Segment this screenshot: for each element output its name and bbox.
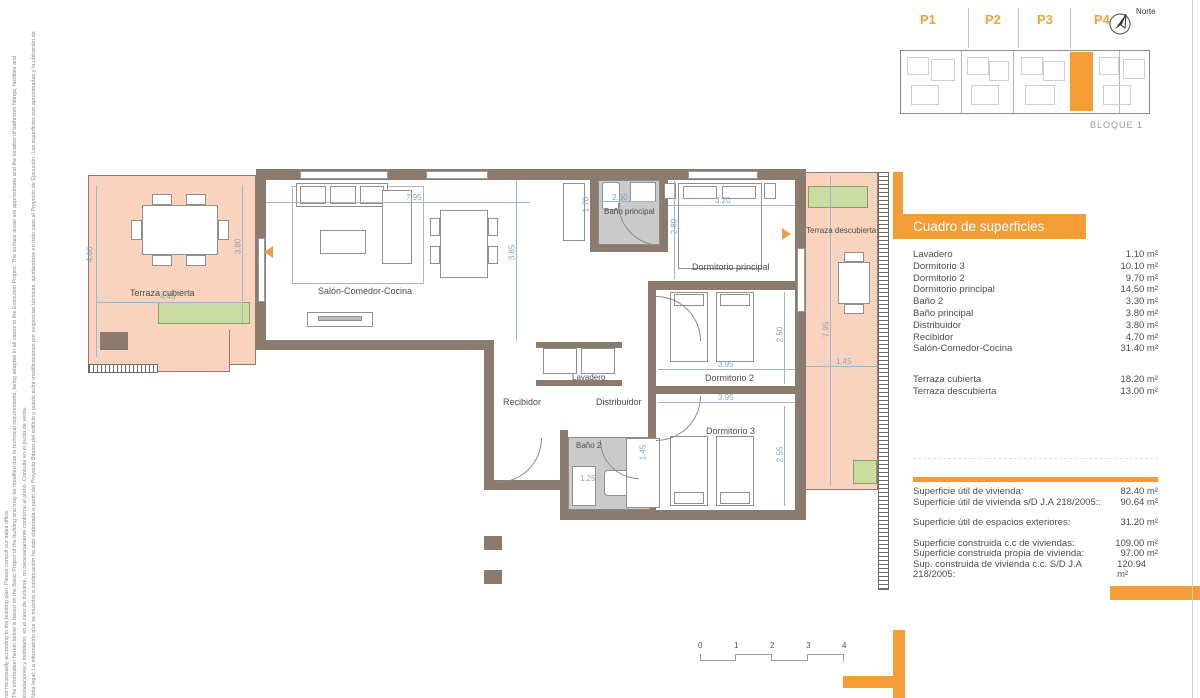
door-arc — [497, 438, 542, 483]
table-row: Distribuidor3.80 m² — [913, 320, 1158, 332]
total-row: Superficie útil de espacios exteriores:3… — [913, 518, 1158, 529]
dim-terraza-cubierta-height: 4.60 — [85, 247, 94, 263]
chair — [152, 194, 172, 205]
row-value: 3.80 m² — [1126, 320, 1158, 332]
keyplan-unit-p3: P3 — [1037, 12, 1053, 27]
terrace-table — [142, 205, 218, 255]
chair — [218, 220, 229, 240]
north-compass-icon — [1106, 8, 1136, 38]
keyplan-unit-outline — [1021, 57, 1043, 75]
scale-tick: 3 — [806, 641, 810, 650]
chair — [844, 304, 864, 314]
table-row: Recibidor4.70 m² — [913, 332, 1158, 344]
planter — [158, 302, 250, 324]
coffee-table — [320, 230, 366, 254]
keyplan-unit-outline — [1043, 61, 1065, 81]
nightstand — [764, 183, 776, 199]
disclaimer-line-es2: instalaciones y mobiliario, en el caso d… — [22, 407, 28, 698]
window — [300, 171, 388, 179]
row-value: 14.50 m² — [1121, 284, 1159, 296]
wall — [590, 169, 598, 252]
dim-terraza-cubierta-height2: 3.80 — [233, 239, 242, 255]
dim-closet-height: 1.70 — [581, 197, 590, 213]
pillow — [720, 492, 750, 504]
row-value: 3.80 m² — [1126, 308, 1158, 320]
table-row: Baño 23.30 m² — [913, 296, 1158, 308]
dim-terraza-descubierta-width: 1.45 — [836, 357, 852, 366]
row-name: Lavadero — [913, 249, 953, 261]
row-name: Superficie útil de vivienda: — [913, 487, 1023, 498]
chair — [186, 255, 206, 266]
disclaimer-line-en1: The information herein below is based on… — [12, 56, 18, 698]
label-terraza-descubierta: Terraza descubierta — [806, 226, 876, 235]
dim-salon-width: 7.95 — [406, 193, 422, 202]
dim-terraza-descubierta-height: 7.95 — [821, 322, 830, 338]
label-recibidor: Recibidor — [503, 397, 541, 407]
keyplan-highlighted-unit — [1070, 52, 1093, 111]
row-name: Dormitorio 2 — [913, 273, 965, 285]
wall — [660, 169, 668, 252]
row-name: Superficie construida propia de vivienda… — [913, 549, 1084, 560]
row-name: Dormitorio 3 — [913, 261, 965, 273]
keyplan-unit-outline — [1025, 85, 1055, 105]
keyplan-building-divider — [1013, 51, 1014, 113]
dimension-line — [96, 185, 97, 357]
dimension-line — [266, 202, 530, 203]
scale-tick: 2 — [770, 641, 774, 650]
table-row: Baño principal3.80 m² — [913, 308, 1158, 320]
surfaces-terrace-table: Terraza cubierta18.20 m² Terraza descubi… — [913, 374, 1158, 398]
total-row: Superficie útil de vivienda s/D J.A 218/… — [913, 498, 1158, 509]
dim-bano2-width: 1.25 — [580, 474, 596, 483]
dim-dorm2-height: 2.50 — [775, 327, 784, 343]
scale-segment — [772, 654, 808, 661]
window — [426, 171, 488, 179]
label-bano-2: Baño 2 — [576, 441, 601, 450]
keyplan-building-divider — [961, 51, 962, 113]
scale-tick: 0 — [698, 641, 702, 650]
chair — [430, 218, 440, 236]
table-row: Dormitorio principal14.50 m² — [913, 284, 1158, 296]
dimension-line — [668, 205, 795, 206]
divider-dotted — [913, 458, 1158, 459]
label-distribuidor: Distribuidor — [596, 397, 642, 407]
terrace-table — [838, 262, 870, 304]
surfaces-title: Cuadro de superficies — [893, 214, 1086, 239]
table-row: Terraza cubierta18.20 m² — [913, 374, 1158, 386]
surfaces-table: Lavadero1.10 m² Dormitorio 310.10 m² Dor… — [913, 249, 1158, 355]
decor-orange-bar — [1110, 586, 1200, 600]
row-name: Superficie útil de espacios exteriores: — [913, 518, 1070, 529]
row-name: Sup. construida de vivienda c.c. S/D J.A… — [913, 560, 1117, 581]
wall — [590, 245, 668, 252]
label-dorm-principal: Dormitorio principal — [692, 262, 770, 272]
pillow — [674, 492, 704, 504]
table-row: Dormitorio 29.70 m² — [913, 273, 1158, 285]
scale-segment — [736, 654, 772, 661]
scale-tick: 4 — [842, 641, 846, 650]
wall — [560, 510, 806, 520]
row-value: 9.70 m² — [1126, 273, 1158, 285]
row-value: 90.64 m² — [1121, 498, 1159, 509]
wall — [256, 340, 494, 350]
washer — [543, 348, 577, 374]
pillow — [720, 294, 750, 306]
keyplan-unit-outline — [911, 85, 939, 105]
orientation-arrow-right — [782, 228, 791, 240]
dimension-line — [806, 366, 878, 367]
orientation-arrow-left — [264, 246, 273, 258]
washbasin — [630, 182, 656, 202]
label-terraza-cubierta: Terraza cubierta — [130, 288, 195, 298]
table-row: Salón-Comedor-Cocina31.40 m² — [913, 343, 1158, 355]
exterior-step — [484, 536, 502, 550]
row-name: Salón-Comedor-Cocina — [913, 343, 1012, 355]
dim-dorm-principal-height: 2.80 — [669, 219, 678, 235]
wall — [795, 169, 806, 520]
terraza-descubierta-area — [800, 172, 878, 490]
label-dorm-2: Dormitorio 2 — [705, 373, 754, 383]
pillow — [683, 186, 717, 199]
row-value: 97.00 m² — [1121, 549, 1159, 560]
chair — [844, 252, 864, 262]
chair — [131, 220, 142, 240]
panel-accent-bar — [893, 172, 903, 220]
dining-table — [440, 210, 488, 278]
decor-orange-horizontal — [843, 676, 905, 688]
label-salon: Salón-Comedor-Cocina — [318, 286, 412, 296]
terraza-step — [100, 332, 128, 350]
row-value: 3.30 m² — [1126, 296, 1158, 308]
planter — [853, 460, 877, 484]
page-edge-line — [1192, 0, 1193, 698]
keyplan-unit-outline — [967, 57, 989, 75]
row-value: 1.10 m² — [1126, 249, 1158, 261]
keyplan-separator — [1018, 8, 1019, 48]
dimension-line — [96, 302, 242, 303]
exterior-step — [484, 570, 502, 584]
spacer — [913, 529, 1158, 539]
keyplan-separator — [1070, 8, 1071, 48]
dimension-line — [242, 185, 243, 325]
keyplan-unit-outline — [989, 61, 1009, 81]
row-name: Terraza cubierta — [913, 374, 981, 386]
keyplan-unit-outline — [1099, 57, 1119, 75]
north-label: Norte — [1136, 7, 1156, 16]
keyplan-unit-outline — [931, 59, 955, 81]
dim-salon-height: 3.85 — [507, 245, 516, 261]
wall — [484, 340, 494, 490]
disclaimer-line-en2: not necessarily according to the buildin… — [4, 509, 10, 698]
wall — [648, 281, 795, 290]
row-name: Baño 2 — [913, 296, 943, 308]
table-row: Dormitorio 310.10 m² — [913, 261, 1158, 273]
row-name: Distribuidor — [913, 320, 961, 332]
keyplan-unit-outline — [1123, 59, 1145, 79]
label-bano-principal: Baño principal — [604, 207, 655, 216]
planter — [808, 186, 868, 208]
tv — [318, 316, 362, 321]
keyplan-separator — [968, 8, 969, 48]
total-row: Sup. construida de vivienda c.c. S/D J.A… — [913, 560, 1158, 581]
table-row: Terraza descubierta13.00 m² — [913, 386, 1158, 398]
row-name: Superficie útil de vivienda s/D J.A 218/… — [913, 498, 1101, 509]
row-value: 13.00 m² — [1121, 386, 1159, 398]
chair — [186, 194, 206, 205]
terrace-door — [797, 248, 805, 312]
row-name: Baño principal — [913, 308, 973, 320]
terraza-hatch-edge — [88, 364, 158, 373]
shower — [572, 466, 596, 506]
scale-segment — [700, 654, 736, 661]
dimension-line — [658, 402, 795, 403]
divider-orange — [913, 477, 1158, 482]
window — [688, 171, 758, 179]
block-label: BLOQUE 1 — [1090, 120, 1143, 130]
label-dorm-3: Dormitorio 3 — [706, 426, 755, 436]
row-name: Dormitorio principal — [913, 284, 995, 296]
row-value: 18.20 m² — [1121, 374, 1159, 386]
total-row: Superficie útil de vivienda:82.40 m² — [913, 487, 1158, 498]
keyplan-unit-p1: P1 — [920, 12, 936, 27]
chair — [488, 246, 498, 264]
scale-segment — [808, 654, 844, 661]
keyplan-unit-outline — [907, 57, 929, 75]
surfaces-totals: Superficie útil de vivienda:82.40 m² Sup… — [913, 487, 1158, 581]
keyplan-unit-p2: P2 — [985, 12, 1001, 27]
total-row: Superficie construida propia de vivienda… — [913, 549, 1158, 560]
dim-dorm2-width: 3.95 — [718, 360, 734, 369]
row-value: 120.94 m² — [1117, 560, 1158, 581]
wall — [560, 430, 568, 515]
table-row: Lavadero1.10 m² — [913, 249, 1158, 261]
row-value: 82.40 m² — [1121, 487, 1159, 498]
row-value: 4.70 m² — [1126, 332, 1158, 344]
dim-dorm-principal-width: 3.20 — [715, 196, 731, 205]
dimension-line — [658, 369, 795, 370]
row-value: 10.10 m² — [1121, 261, 1159, 273]
label-lavadero: Lavadero — [572, 373, 605, 382]
keyplan-building — [900, 50, 1150, 114]
row-value: 31.40 m² — [1121, 343, 1159, 355]
chair — [430, 246, 440, 264]
keyplan-unit-outline — [1103, 85, 1131, 105]
dim-dorm3-width: 3.95 — [718, 393, 734, 402]
chair — [152, 255, 172, 266]
dryer — [581, 348, 615, 374]
row-name: Recibidor — [913, 332, 953, 344]
row-value: 31.20 m² — [1121, 518, 1159, 529]
dim-wardrobe-height: 1.45 — [638, 445, 647, 461]
scale-tick: 1 — [734, 641, 738, 650]
disclaimer-line-es1: Nota legal: La información que se muestr… — [31, 31, 37, 698]
dim-dorm3-height: 2.55 — [775, 447, 784, 463]
dim-bano-principal-width: 2.30 — [612, 193, 628, 202]
dimension-line — [598, 201, 660, 202]
keyplan-unit-outline — [971, 85, 999, 105]
terraza-hatch-edge — [878, 172, 889, 590]
dimension-line — [516, 181, 517, 341]
chair — [488, 218, 498, 236]
row-name: Terraza descubierta — [913, 386, 996, 398]
